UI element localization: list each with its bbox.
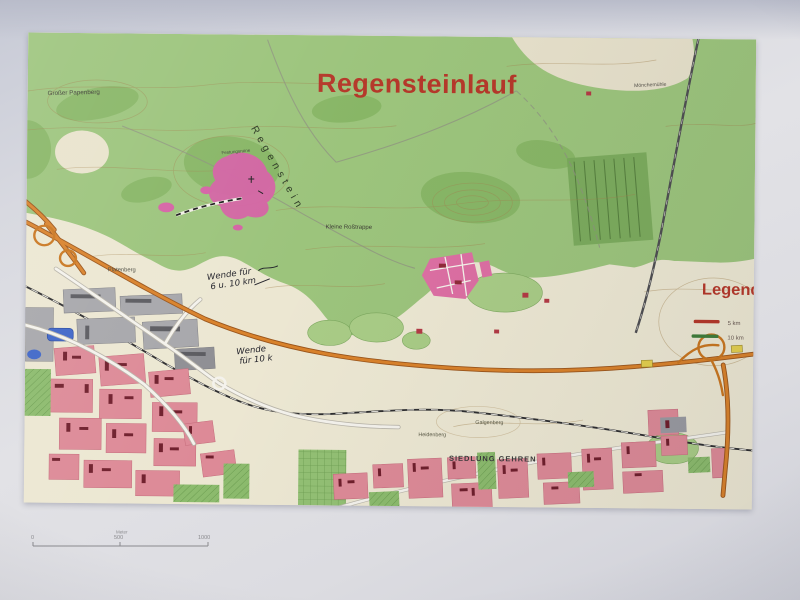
- scale-mid: 500: [114, 535, 123, 541]
- legend-title: Legende: [702, 281, 756, 299]
- scale-bar: 0 500 Meter 1000: [30, 530, 220, 556]
- scale-end: 1000: [198, 535, 210, 541]
- scale-unit: Meter: [116, 530, 128, 535]
- legend-label-10km: 10 km: [727, 336, 743, 342]
- scale-zero: 0: [31, 535, 34, 541]
- label-grosser-papenberg: Großer Papenberg: [47, 89, 100, 97]
- legend-line-5km: [694, 320, 720, 324]
- legend-label-5km: 5 km: [728, 321, 741, 327]
- map-canvas: Regensteinlauf Großer Papenberg Regenste…: [24, 33, 756, 510]
- label-heidenberg: Heidenberg: [418, 432, 446, 438]
- map-title: Regensteinlauf: [317, 68, 517, 100]
- printed-map: Regensteinlauf Großer Papenberg Regenste…: [24, 33, 756, 510]
- label-kleine-rosstrappe: Kleine Roßtrappe: [326, 224, 373, 230]
- legend-line-10km: [692, 334, 719, 338]
- label-siedlung-gehren: SIEDLUNG GEHREN: [449, 454, 537, 464]
- photo-of-paper-map: Regensteinlauf Großer Papenberg Regenste…: [0, 0, 800, 600]
- label-galgenberg: Galgenberg: [475, 420, 503, 426]
- label-platenberg: Platenberg: [108, 267, 136, 273]
